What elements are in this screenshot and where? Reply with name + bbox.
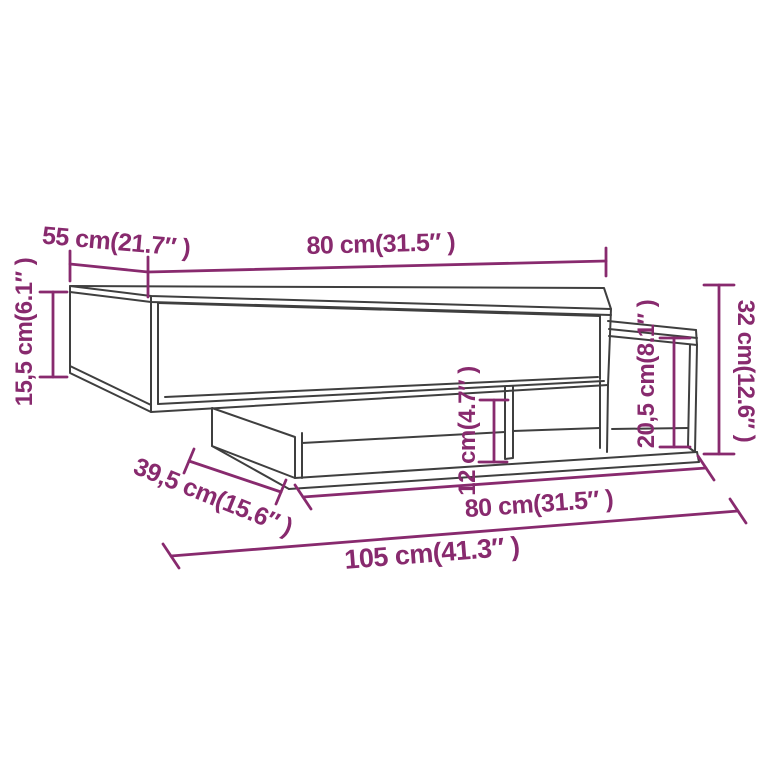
tabletop-bottom-front-edge bbox=[151, 385, 608, 412]
compartment2-floor-edge bbox=[513, 428, 600, 431]
dim-line bbox=[148, 261, 606, 272]
dim-tabletop-height: 15,5 cm(6.1″ ) bbox=[11, 258, 67, 407]
compartment-divider bbox=[505, 386, 513, 459]
coffee-table-drawing bbox=[70, 286, 699, 489]
side-unit-left-wall-outer bbox=[607, 385, 608, 452]
tabletop-left-face bbox=[70, 286, 151, 412]
dim-label-base-width: 80 cm(31.5″ ) bbox=[464, 485, 614, 523]
dimension-diagram: 55 cm(21.7″ ) 80 cm(31.5″ ) 15,5 cm(6.1″… bbox=[0, 0, 767, 767]
tabletop-box bbox=[70, 286, 611, 412]
tabletop-bottom-inner-edge bbox=[158, 381, 604, 404]
side-unit-slab-end bbox=[696, 330, 697, 345]
dim-label-tabletop-depth: 55 cm(21.7″ ) bbox=[41, 222, 192, 263]
dim-tabletop-width: 80 cm(31.5″ ) bbox=[148, 228, 606, 276]
dim-label-overall-height: 32 cm(12.6″ ) bbox=[732, 300, 759, 442]
tabletop-left-inner-edge bbox=[70, 366, 151, 405]
dim-label-shelf-opening-height: 12 cm(4.7″ ) bbox=[454, 366, 481, 496]
dim-label-tabletop-height: 15,5 cm(6.1″ ) bbox=[11, 258, 38, 407]
base-left-wall bbox=[212, 408, 295, 478]
dim-overall-height: 32 cm(12.6″ ) bbox=[704, 285, 759, 454]
dim-label-side-unit-height: 20,5 cm(8.1″ ) bbox=[633, 300, 660, 449]
dim-side-unit-height: 20,5 cm(8.1″ ) bbox=[633, 300, 690, 449]
side-unit-right-wall bbox=[688, 345, 697, 452]
coffee-table-diagram-svg: 55 cm(21.7″ ) 80 cm(31.5″ ) 15,5 cm(6.1″… bbox=[0, 0, 767, 767]
tabletop-interior-floor-edge bbox=[165, 377, 598, 397]
dim-line bbox=[70, 264, 148, 272]
dim-label-overall-width: 105 cm(41.3″ ) bbox=[343, 531, 520, 575]
dim-label-tabletop-width: 80 cm(31.5″ ) bbox=[306, 228, 455, 260]
